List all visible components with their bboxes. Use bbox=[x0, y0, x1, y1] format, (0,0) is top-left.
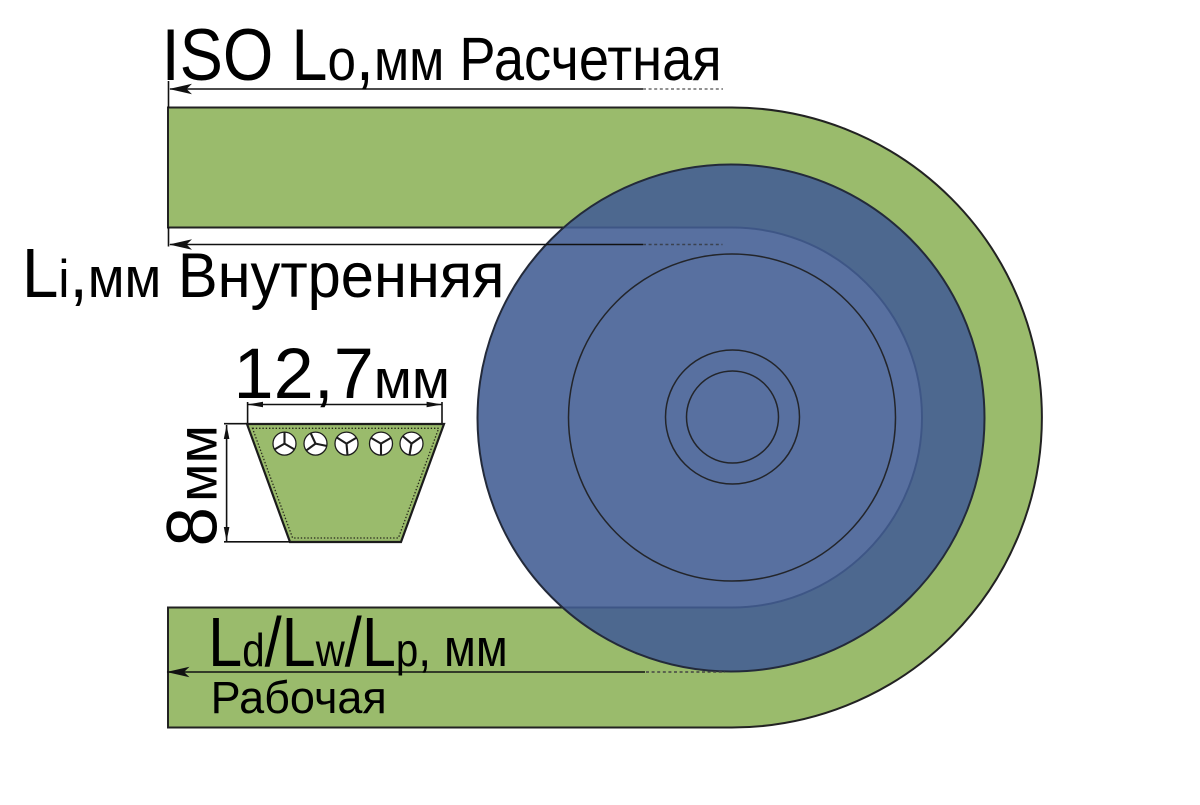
svg-text:Рабочая: Рабочая bbox=[211, 672, 387, 723]
svg-text:8мм: 8мм bbox=[154, 425, 233, 547]
svg-text:Li,мм Внутренняя: Li,мм Внутренняя bbox=[22, 235, 504, 312]
